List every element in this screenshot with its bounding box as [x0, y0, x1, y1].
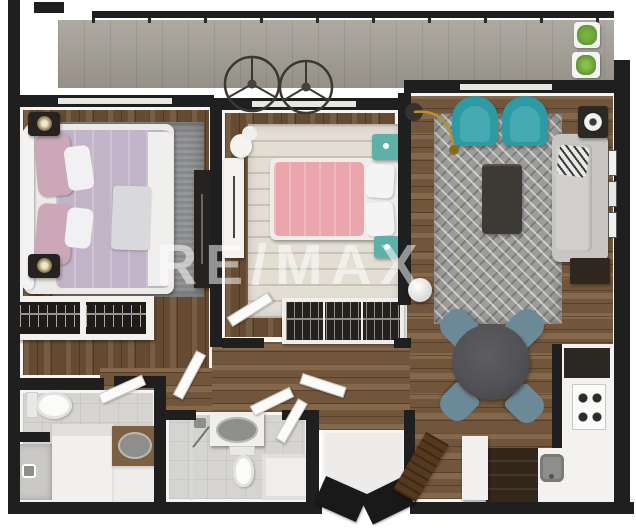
potted-plant [574, 22, 600, 48]
faucet [549, 474, 554, 479]
wall-outer-bottom-left [8, 502, 322, 514]
bedroom-2-nightstand [372, 134, 400, 160]
balcony-railing-posts [92, 18, 614, 23]
wall-bathroom2-top-west [154, 410, 196, 420]
wardrobe-hangers [86, 302, 146, 334]
wall-bedroom-divider [210, 107, 222, 347]
window-slider-living [460, 84, 552, 90]
entry-side-cabinet [462, 436, 488, 500]
bedroom-1-white-pillow [64, 207, 94, 249]
table-lamp [583, 112, 603, 132]
toilet-bowl [36, 392, 72, 419]
wall-shower1-stub [8, 432, 50, 442]
bedroom-1-throw-blanket [111, 185, 151, 250]
floor-plan: RE/MAX [0, 0, 636, 529]
wardrobe-divider [323, 302, 325, 340]
wall-outer-bottom-right [410, 502, 634, 514]
toilet-bowl [233, 455, 254, 487]
wall-bedroom2-bottom-east [394, 338, 411, 348]
potted-plant [572, 52, 600, 78]
kitchen-counter-edge [552, 344, 562, 456]
dresser-handle [233, 176, 235, 238]
shower-enclosure [52, 424, 114, 502]
gas-stove [572, 384, 606, 430]
vanity-sink [216, 417, 258, 443]
bedroom-2-pillow [365, 163, 395, 199]
wall-outer-right [614, 60, 630, 514]
wall-chimney-marker [34, 2, 64, 13]
shower-head [22, 464, 36, 478]
dining-table [452, 324, 530, 400]
wall-frame [608, 212, 617, 238]
sofa [552, 134, 608, 262]
wall-frame [608, 181, 617, 207]
balcony-railing [92, 11, 614, 18]
kitchen-fridge [564, 348, 610, 378]
arc-lamp-icon [402, 98, 472, 168]
vanity-cabinet [262, 454, 310, 500]
vanity-cabinet [112, 466, 158, 502]
sofa-pillow [556, 144, 590, 178]
bedroom-2-wardrobe [282, 298, 404, 344]
kitchen-dark-cabinet [486, 448, 538, 504]
vanity-sink [118, 432, 152, 459]
table-lamp [37, 258, 52, 273]
bedroom-1-nightstand [28, 112, 60, 136]
media-console [570, 258, 610, 284]
wall-bathroom-divider [154, 388, 166, 502]
plant-foliage [577, 25, 597, 45]
wall-bedroom2-bottom-west [222, 338, 264, 348]
shower-glass [190, 414, 193, 500]
armchair-cushion [510, 106, 540, 142]
armchair [502, 96, 548, 146]
coffee-table [482, 164, 522, 234]
bedroom-2-duvet [274, 162, 364, 236]
arc-floor-lamp [402, 98, 472, 168]
kitchen-sink [540, 454, 564, 482]
wardrobe-hangers [286, 302, 400, 340]
bedroom-1-nightstand [28, 254, 60, 278]
wardrobe-divider [361, 302, 363, 340]
bedroom-1-wardrobe [12, 296, 154, 340]
plush-bunny-head [242, 126, 257, 141]
wardrobe-hangers [20, 302, 80, 334]
table-lamp [37, 116, 52, 131]
wall-frame [608, 150, 617, 176]
side-table [578, 106, 608, 138]
wall-bathroom2-right [306, 410, 319, 502]
window-slider-bedroom-1 [58, 98, 172, 104]
ceiling-fans [220, 52, 356, 118]
plant-foliage [576, 55, 596, 75]
remax-watermark: RE/MAX [156, 232, 426, 298]
ceiling-fan-icon [220, 52, 356, 118]
wall-bathroom1-top-west [8, 378, 104, 390]
knob [383, 143, 389, 149]
